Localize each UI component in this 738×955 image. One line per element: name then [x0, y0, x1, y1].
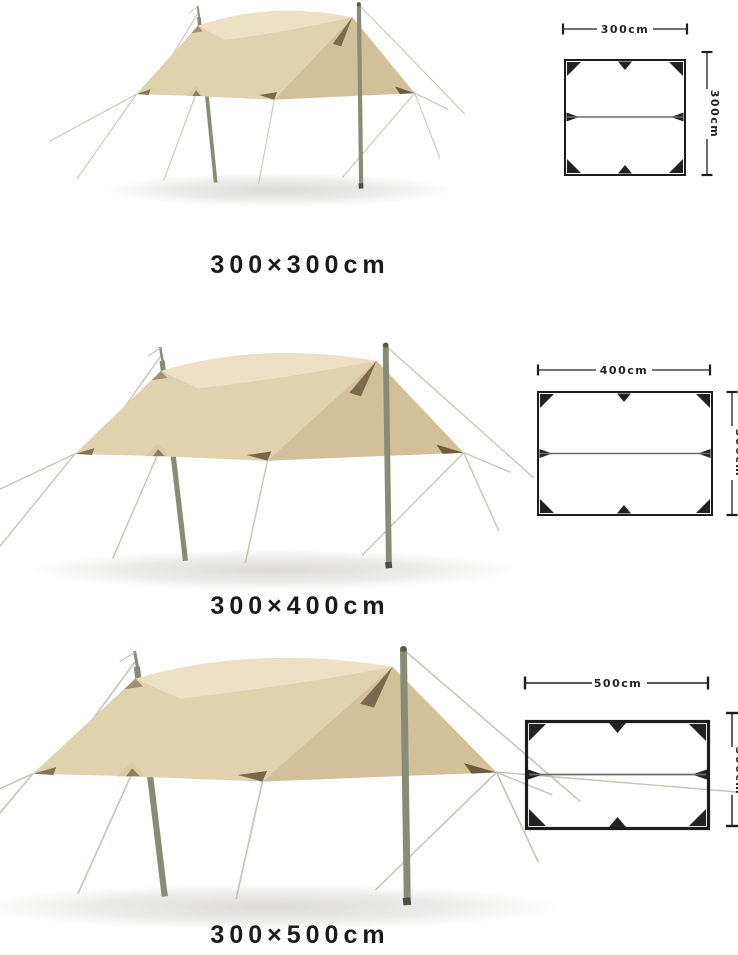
- tarp-photo-300x400: [0, 343, 534, 591]
- size-caption-300x500: 300×500cm: [0, 921, 600, 950]
- size-caption-300x400: 300×400cm: [0, 592, 600, 621]
- height-dimension-label: 300cm: [733, 747, 738, 795]
- size-diagram-300x300: 300cm 300cm: [563, 23, 721, 175]
- width-dimension-label: 300cm: [601, 23, 649, 36]
- tarp-photo-300x500: [0, 646, 580, 931]
- size-caption-300x300: 300×300cm: [0, 251, 600, 280]
- size-diagram-300x400: 400cm 300cm: [538, 364, 738, 515]
- tarp-size-chart: 300cm 300cm: [0, 0, 738, 955]
- height-dimension-label: 300cm: [733, 429, 738, 477]
- illustration-layer: 300cm 300cm: [0, 0, 738, 955]
- width-dimension-label: 400cm: [600, 364, 648, 377]
- size-diagram-300x500: 500cm 300cm: [525, 677, 738, 829]
- width-dimension-label: 500cm: [594, 677, 642, 690]
- tarp-photo-300x300: [49, 2, 465, 207]
- height-dimension-label: 300cm: [708, 90, 721, 138]
